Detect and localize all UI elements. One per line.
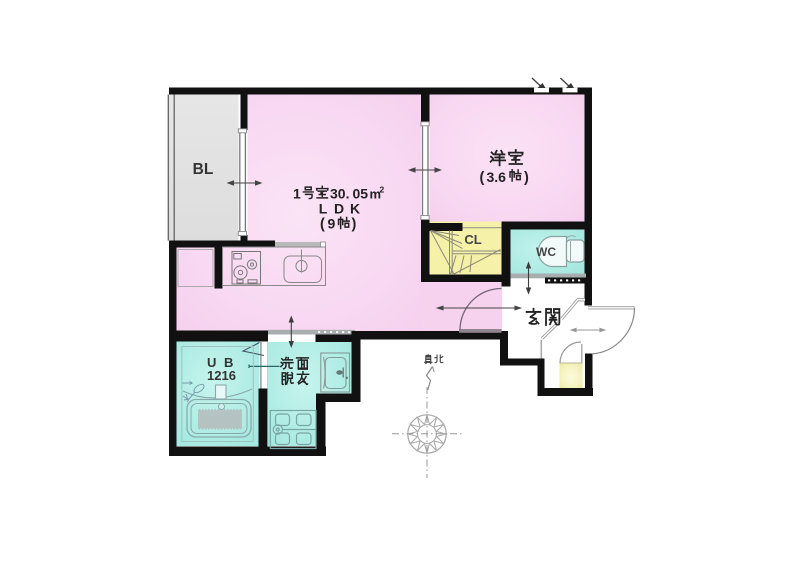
svg-text:1216: 1216 [207,368,236,383]
svg-text:CL: CL [464,232,481,247]
svg-text:WC: WC [536,245,556,259]
svg-text:9: 9 [328,216,336,232]
svg-text:K: K [350,201,360,217]
svg-text:): ) [524,170,529,186]
svg-text:(: ( [320,217,325,233]
svg-text:05: 05 [353,186,369,202]
svg-text:BL: BL [193,161,214,178]
svg-text:1: 1 [293,186,301,202]
svg-text:D: D [334,201,344,217]
svg-text:30.: 30. [330,186,349,202]
svg-text:L: L [319,201,328,217]
svg-text:): ) [352,217,357,233]
svg-text:2: 2 [380,185,385,195]
svg-text:(: ( [480,170,485,186]
svg-text:3.6: 3.6 [487,169,507,185]
